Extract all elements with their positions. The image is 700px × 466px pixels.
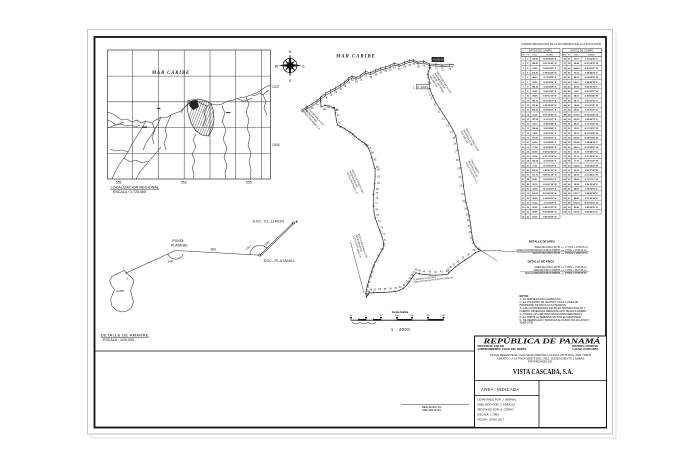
svg-text:AREA: INDICADA: AREA: INDICADA [481, 387, 520, 392]
svg-text:DIST.: DIST. [533, 54, 538, 56]
svg-text:N 27°18'32" W: N 27°18'32" W [585, 128, 598, 130]
svg-text:S 22°09'14" W: S 22°09'14" W [543, 155, 556, 158]
svg-text:S 86°47'03" W: S 86°47'03" W [543, 169, 556, 172]
svg-text:S 83°22'51" W: S 83°22'51" W [585, 91, 598, 93]
svg-text:LUGAR: KARKANTO: LUGAR: KARKANTO [572, 347, 599, 351]
svg-text:119.96: 119.96 [532, 59, 539, 61]
svg-text:S 79°46'07" E: S 79°46'07" E [585, 150, 598, 153]
svg-text:S 82°36'43" E: S 82°36'43" E [543, 127, 556, 130]
svg-text:P. VACIO: P. VACIO [418, 85, 429, 89]
svg-text:PROPIEDADES DE:: PROPIEDADES DE: [528, 360, 553, 364]
svg-text:S 17°27'55" W: S 17°27'55" W [585, 124, 598, 126]
svg-text:50.59: 50.59 [532, 142, 538, 144]
svg-text:PUNTA: PUNTA [172, 239, 184, 243]
svg-text:LEVANTADO POR: J. BERNAL: LEVANTADO POR: J. BERNAL [478, 397, 518, 401]
svg-text:21.35: 21.35 [532, 114, 538, 116]
svg-text:138.23: 138.23 [532, 110, 539, 112]
svg-text:N 18°44'34" W: N 18°44'34" W [543, 211, 556, 214]
svg-text:1007: 1007 [272, 85, 280, 89]
svg-text:15 HAS + 2850.00 m²: 15 HAS + 2850.00 m² [565, 252, 588, 255]
svg-text:71.51: 71.51 [532, 165, 538, 167]
svg-text:N 54°03'52" E: N 54°03'52" E [543, 67, 556, 70]
svg-text:Escala Grafica: Escala Grafica [392, 311, 409, 314]
svg-text:N 12°23'39" E: N 12°23'39" E [543, 189, 556, 191]
svg-text:S 88°10'33" W: S 88°10'33" W [543, 207, 556, 209]
svg-text:ESC. PLATANAL: ESC. PLATANAL [264, 259, 295, 263]
svg-text:N: N [289, 50, 292, 54]
svg-text:169.17: 169.17 [573, 82, 580, 84]
svg-text:PLATANAL: PLATANAL [171, 243, 188, 247]
svg-text:S 10°09'06" E: S 10°09'06" E [543, 202, 556, 204]
svg-text:N 39°35'52" E: N 39°35'52" E [543, 82, 556, 84]
svg-text:S 82°55'05" W: S 82°55'05" W [543, 216, 556, 218]
svg-text:97.03: 97.03 [574, 73, 580, 75]
svg-text:S 02°00'51" E: S 02°00'51" E [585, 119, 598, 121]
svg-text:127.59: 127.59 [532, 119, 539, 121]
svg-text:S: S [289, 79, 292, 83]
svg-text:S 24°44'38" W: S 24°44'38" W [585, 76, 598, 79]
svg-text:RESTO DE FINCA 33735: RESTO DE FINCA 33735 [533, 252, 561, 255]
svg-text:S 88°17'28" W: S 88°17'28" W [585, 170, 598, 172]
svg-text:RUMBO: RUMBO [588, 54, 596, 56]
svg-text:DIBUJADO POR: J. ARRIOLA: DIBUJADO POR: J. ARRIOLA [478, 402, 516, 406]
svg-text:283: 283 [210, 248, 216, 252]
svg-text:ESCALA: 1:7000: ESCALA: 1:7000 [478, 413, 500, 417]
svg-text:MAR CARIBE: MAR CARIBE [335, 55, 376, 60]
svg-text:551: 551 [116, 181, 122, 185]
svg-text:S 24°17'02" W: S 24°17'02" W [585, 160, 598, 163]
svg-text:90.32: 90.32 [532, 207, 538, 209]
svg-text:102.31: 102.31 [573, 119, 580, 121]
svg-text:91.22: 91.22 [532, 202, 538, 204]
svg-text:23.60: 23.60 [532, 68, 538, 70]
svg-text:DATOS DE CAMPO: DATOS DE CAMPO [529, 49, 552, 53]
svg-text:41.83: 41.83 [574, 85, 580, 88]
svg-text:29.85: 29.85 [574, 110, 580, 112]
svg-text:59.27: 59.27 [532, 216, 538, 218]
svg-text:NUEVA AREA DE FINCA 399678: NUEVA AREA DE FINCA 399678 [525, 272, 561, 275]
svg-text:77.08: 77.08 [532, 147, 538, 149]
svg-text:1 : 4000: 1 : 4000 [391, 327, 410, 332]
svg-text:52.61: 52.61 [574, 133, 580, 135]
svg-text:FECHA: JUNIO 2017: FECHA: JUNIO 2017 [478, 418, 505, 422]
svg-text:CORREGIMIENTO: CHILE DEL NORTE: CORREGIMIENTO: CHILE DEL NORTE [478, 347, 527, 351]
svg-text:76.08: 76.08 [574, 105, 580, 107]
svg-text:S 49°50'45" W: S 49°50'45" W [585, 95, 598, 98]
svg-text:98.57: 98.57 [574, 124, 580, 126]
svg-text:N 76°30'42" W: N 76°30'42" W [585, 113, 598, 116]
svg-text:N 84°37'52" W: N 84°37'52" W [585, 136, 598, 139]
svg-text:S 71°57'12" W: S 71°57'12" W [585, 179, 598, 181]
svg-text:S 64°08'34" E: S 64°08'34" E [585, 141, 598, 144]
svg-text:REVISADO POR: A. OTERO: REVISADO POR: A. OTERO [478, 408, 515, 412]
svg-text:131.17: 131.17 [573, 193, 580, 195]
svg-text:N 72°20'08" E: N 72°20'08" E [543, 165, 556, 167]
svg-text:N 14°21'38" W: N 14°21'38" W [543, 183, 556, 186]
svg-text:151.18: 151.18 [573, 202, 580, 204]
svg-text:S 76°31'37" E: S 76°31'37" E [543, 119, 556, 121]
svg-text:N 27°02'05" W: N 27°02'05" W [543, 63, 556, 65]
svg-text:ESCALA : 1:725,000: ESCALA : 1:725,000 [113, 190, 146, 194]
svg-text:133.46: 133.46 [532, 104, 539, 107]
svg-text:W: W [275, 65, 279, 69]
svg-text:101: 101 [327, 106, 332, 109]
svg-text:33.96: 33.96 [532, 156, 538, 158]
svg-text:171.72: 171.72 [532, 175, 539, 177]
svg-text:N 23°38'00" W: N 23°38'00" W [585, 147, 598, 149]
svg-text:S 34°30'44" E: S 34°30'44" E [543, 123, 556, 126]
svg-text:S 74°03'36" W: S 74°03'36" W [543, 72, 556, 75]
svg-text:97.16: 97.16 [574, 156, 580, 158]
svg-text:S 71°54'08" E: S 71°54'08" E [543, 76, 556, 79]
svg-text:DATOS DE CAMPO: DATOS DE CAMPO [570, 49, 593, 53]
svg-text:96.09: 96.09 [574, 170, 580, 172]
svg-text:113.62: 113.62 [532, 193, 539, 195]
svg-text:28.26: 28.26 [532, 82, 538, 84]
svg-text:VISTA CASCADA, S.A.: VISTA CASCADA, S.A. [513, 368, 573, 376]
svg-text:102: 102 [323, 108, 328, 111]
svg-text:S 85°22'01" E: S 85°22'01" E [543, 133, 556, 135]
svg-text:ESC. EL LIMON: ESC. EL LIMON [253, 219, 284, 223]
svg-text:17.77: 17.77 [574, 161, 580, 163]
svg-text:MAR CARIBE: MAR CARIBE [151, 71, 190, 76]
svg-text:94.46: 94.46 [574, 62, 580, 65]
svg-text:S 53°22'43" W: S 53°22'43" W [543, 150, 556, 153]
svg-text:S 56°45'01" E: S 56°45'01" E [585, 211, 598, 214]
svg-text:N 87°51'35" W: N 87°51'35" W [543, 175, 556, 177]
svg-text:114.23: 114.23 [532, 169, 539, 172]
svg-text:18.25: 18.25 [532, 91, 538, 93]
svg-text:88.08: 88.08 [532, 96, 538, 98]
svg-text:S 81°21'05" E: S 81°21'05" E [585, 100, 598, 102]
svg-text:103.30: 103.30 [573, 212, 580, 214]
svg-text:32.35: 32.35 [574, 151, 580, 153]
svg-text:S 14°54'31" W: S 14°54'31" W [543, 197, 556, 200]
svg-text:S 50°58'55" E: S 50°58'55" E [543, 142, 556, 144]
svg-text:CUADRO RESULTANTE DE LA INCORP: CUADRO RESULTANTE DE LA INCORPORACION A … [521, 42, 601, 46]
svg-text:DETALLE DE AREA: DETALLE DE AREA [529, 239, 555, 243]
svg-text:N 81°14'39" W: N 81°14'39" W [585, 62, 598, 65]
svg-text:N 26°30'39" E: N 26°30'39" E [585, 86, 598, 88]
svg-text:S 63°03'13" E: S 63°03'13" E [543, 137, 556, 139]
svg-text:S 38°50'07" E: S 38°50'07" E [585, 189, 598, 191]
svg-text:LOCALIZACION REGIONAL: LOCALIZACION REGIONAL [111, 186, 160, 190]
svg-text:GLOBO: GLOBO [116, 290, 125, 293]
svg-text:89.23: 89.23 [574, 77, 580, 79]
svg-text:N 53°53'08" W: N 53°53'08" W [585, 133, 598, 135]
svg-text:A COLON: A COLON [433, 58, 445, 62]
svg-text:148°: 148° [168, 260, 175, 264]
svg-text:113.08: 113.08 [532, 137, 539, 139]
svg-text:8 HAS + 1735.25 m²: 8 HAS + 1735.25 m² [565, 272, 587, 275]
svg-text:1005: 1005 [272, 143, 280, 147]
svg-text:ESCALA : 1/20,000: ESCALA : 1/20,000 [103, 338, 134, 342]
svg-text:12.81: 12.81 [574, 128, 580, 130]
svg-text:165.85: 165.85 [573, 142, 580, 144]
svg-text:162.41: 162.41 [573, 136, 580, 139]
svg-text:80.46: 80.46 [574, 206, 580, 209]
svg-text:E: E [302, 65, 305, 69]
svg-text:71.07: 71.07 [574, 59, 580, 61]
svg-text:S 84°23'09" E: S 84°23'09" E [585, 192, 598, 195]
svg-text:N 10°36'19" E: N 10°36'19" E [543, 100, 556, 102]
svg-text:S 56°20'04" E: S 56°20'04" E [585, 183, 598, 186]
svg-text:34.02: 34.02 [532, 188, 538, 191]
svg-text:S 31°44'33" W: S 31°44'33" W [585, 174, 598, 177]
svg-text:DETALLE DE FINCA: DETALLE DE FINCA [528, 259, 555, 263]
svg-text:83.79: 83.79 [532, 184, 538, 186]
svg-text:S 26°31'43" E: S 26°31'43" E [543, 90, 556, 93]
svg-text:30405-3705.: 30405-3705. [520, 322, 534, 325]
svg-text:89.55: 89.55 [532, 198, 538, 200]
svg-text:553: 553 [181, 181, 187, 185]
svg-text:S 36°38'04" W: S 36°38'04" W [543, 104, 556, 107]
svg-text:88.45: 88.45 [574, 197, 580, 200]
svg-text:S 30°52'25" W: S 30°52'25" W [585, 68, 598, 70]
svg-text:S 71°30'50" E: S 71°30'50" E [585, 156, 598, 158]
svg-text:164.47: 164.47 [532, 62, 539, 65]
svg-text:555: 555 [246, 181, 252, 185]
svg-text:S 51°47'05" W: S 51°47'05" W [585, 104, 598, 107]
svg-text:S 45°20'05" E: S 45°20'05" E [585, 206, 598, 209]
svg-text:28.62: 28.62 [574, 96, 580, 98]
svg-text:S 08°28'20" W: S 08°28'20" W [585, 165, 598, 167]
svg-text:S 19°37'57" E: S 19°37'57" E [585, 110, 598, 112]
svg-text:DETALLE DE AMARRE: DETALLE DE AMARRE [101, 332, 149, 337]
svg-text:154.65: 154.65 [573, 67, 580, 70]
svg-text:DIBUJANTE SG.: DIBUJANTE SG. [422, 408, 442, 412]
svg-text:128.66: 128.66 [532, 128, 539, 130]
svg-text:25.81: 25.81 [532, 179, 538, 181]
svg-text:S 23°16'18" E: S 23°16'18" E [543, 161, 556, 163]
svg-text:150.95: 150.95 [532, 161, 539, 163]
svg-text:113.19: 113.19 [573, 114, 580, 116]
svg-text:38.71: 38.71 [574, 100, 580, 102]
svg-text:S 24°23'06" E: S 24°23'06" E [543, 85, 556, 88]
svg-text:52.65: 52.65 [574, 179, 580, 181]
svg-text:28.92: 28.92 [574, 184, 580, 186]
svg-text:142.13: 142.13 [532, 99, 539, 102]
svg-text:REPÚBLICA DE PANAMÁ: REPÚBLICA DE PANAMÁ [482, 337, 601, 345]
svg-text:RUMBO: RUMBO [546, 54, 554, 56]
svg-text:46.03: 46.03 [532, 76, 538, 79]
svg-text:74.36: 74.36 [532, 132, 538, 135]
svg-text:N 19°59'31" E: N 19°59'31" E [543, 110, 556, 112]
svg-text:N 20°45'27" W: N 20°45'27" W [585, 201, 598, 204]
svg-text:N 09°52'34" E: N 09°52'34" E [543, 58, 556, 61]
svg-text:S 45°46'01" E: S 45°46'01" E [585, 72, 598, 75]
svg-text:44.58: 44.58 [574, 188, 580, 191]
svg-text:95.33: 95.33 [574, 175, 580, 177]
svg-text:116.47: 116.47 [532, 72, 539, 75]
svg-text:106.25: 106.25 [532, 86, 539, 88]
svg-text:S 21°22'49" E: S 21°22'49" E [585, 58, 598, 61]
svg-text:N 81°25'03" E: N 81°25'03" E [543, 179, 556, 181]
svg-text:S 44°23'05" E: S 44°23'05" E [585, 81, 598, 84]
svg-text:24.10: 24.10 [532, 123, 538, 126]
svg-text:N 35°56'08" E: N 35°56'08" E [543, 147, 556, 149]
svg-text:55.89: 55.89 [532, 151, 538, 153]
svg-text:N 19°40'16" W: N 19°40'16" W [543, 192, 556, 195]
svg-text:N 12°25'56" E: N 12°25'56" E [585, 198, 598, 200]
svg-text:N 71°36'50" W: N 71°36'50" W [543, 114, 556, 116]
svg-text:104.62: 104.62 [573, 164, 580, 167]
svg-text:158.12: 158.12 [573, 147, 580, 149]
svg-text:S 58°23'19" W: S 58°23'19" W [543, 96, 556, 98]
svg-text:DIST.: DIST. [574, 54, 579, 56]
svg-text:98.86: 98.86 [532, 212, 538, 214]
